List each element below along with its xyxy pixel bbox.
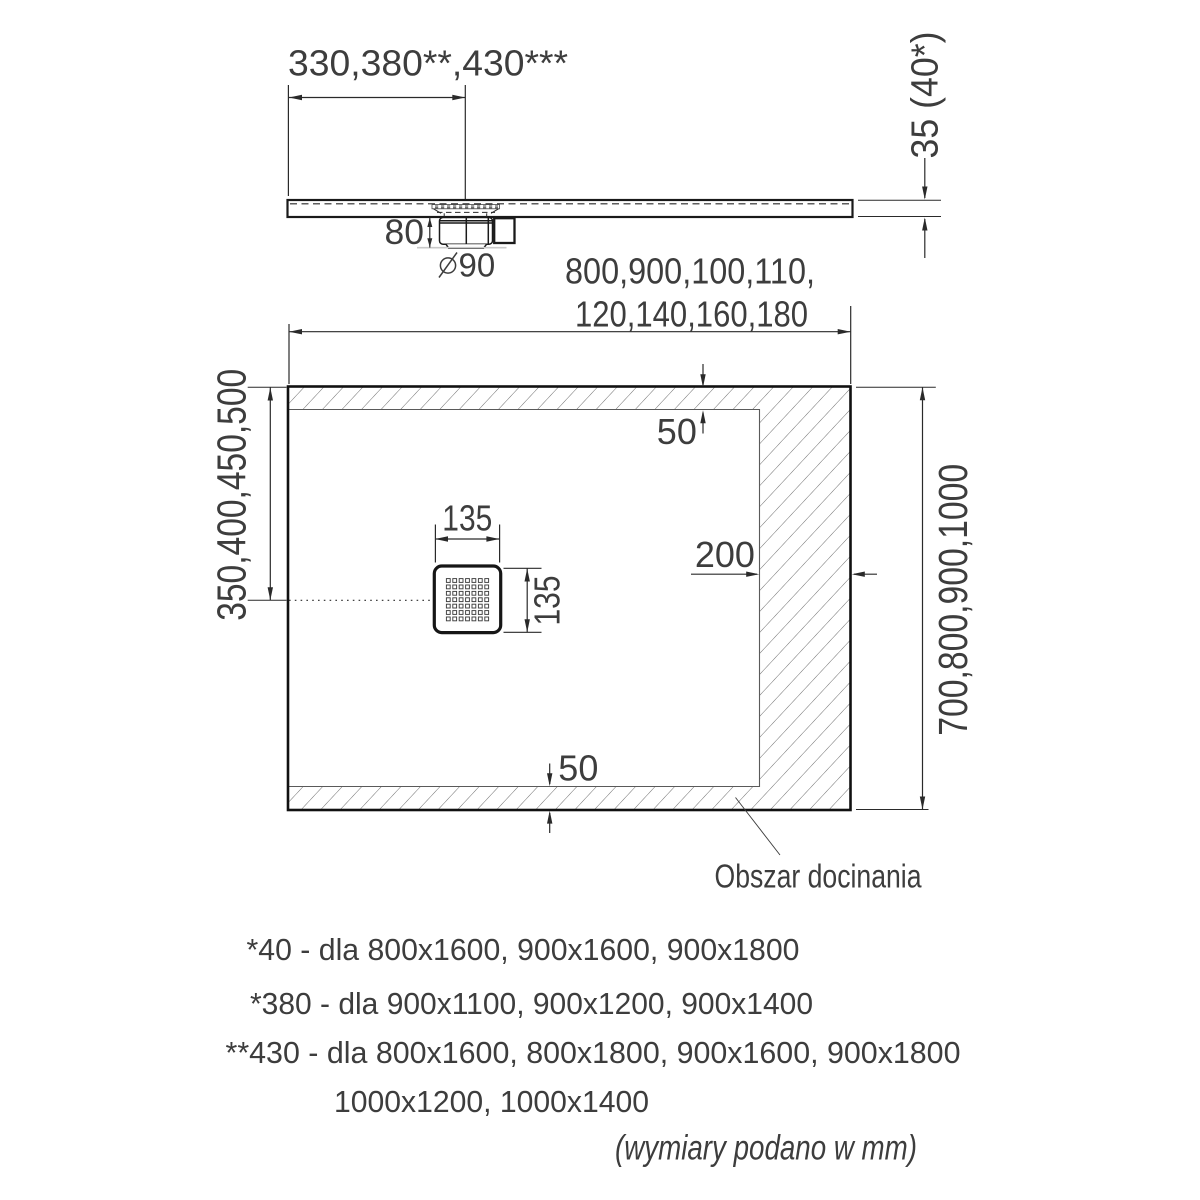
svg-text:35 (40*): 35 (40*) [905, 32, 947, 159]
svg-text:700,800,900,1000: 700,800,900,1000 [930, 464, 976, 736]
svg-text:(wymiary podano w mm): (wymiary podano w mm) [615, 1129, 917, 1168]
svg-text:330,380**,430***: 330,380**,430*** [288, 43, 568, 84]
svg-text:200: 200 [695, 534, 755, 575]
svg-text:135: 135 [442, 498, 492, 539]
svg-text:1000x1200, 1000x1400: 1000x1200, 1000x1400 [334, 1084, 649, 1119]
svg-text:120,140,160,180: 120,140,160,180 [575, 294, 808, 335]
svg-text:800,900,100,110,: 800,900,100,110, [565, 251, 815, 292]
svg-text:50: 50 [657, 411, 697, 452]
svg-text:**430 - dla 800x1600, 800x1800: **430 - dla 800x1600, 800x1800, 900x1600… [226, 1035, 961, 1070]
svg-text:Obszar docinania: Obszar docinania [715, 859, 922, 896]
svg-text:135: 135 [527, 576, 568, 626]
svg-text:90: 90 [459, 247, 496, 284]
svg-text:50: 50 [558, 748, 598, 789]
svg-text:*380 - dla 900x1100, 900x1200,: *380 - dla 900x1100, 900x1200, 900x1400 [250, 986, 813, 1021]
svg-text:350,400,450,500: 350,400,450,500 [208, 369, 254, 621]
svg-text:80: 80 [385, 212, 425, 252]
svg-text:*40 - dla 800x1600, 900x1600,: *40 - dla 800x1600, 900x1600, 900x1800 [247, 932, 800, 967]
